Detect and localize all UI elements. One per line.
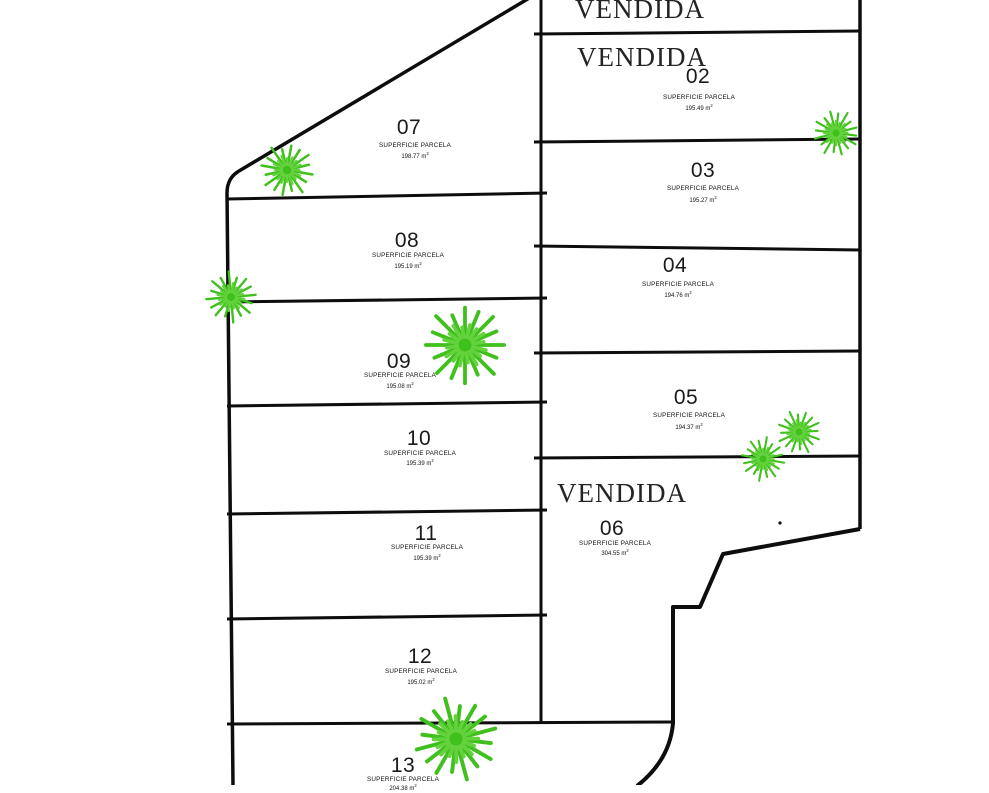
parcel-06-outer-boundary	[637, 529, 860, 785]
parcel-area: 195.49 m2	[685, 102, 712, 113]
parcel-area: 304.55 m2	[601, 547, 628, 558]
parcel-area: 194.76 m2	[664, 289, 691, 300]
plot-boundaries	[227, 0, 861, 785]
parcel-number: 13	[391, 756, 415, 776]
vendida-label: VENDIDA	[575, 0, 705, 23]
parcel-superficie-label: SUPERFICIE PARCELA	[663, 94, 735, 102]
parcel-superficie-label: SUPERFICIE PARCELA	[391, 544, 463, 552]
parcel-superficie-label: SUPERFICIE PARCELA	[642, 281, 714, 289]
parcel-superficie-label: SUPERFICIE PARCELA	[372, 252, 444, 260]
palm-trees	[197, 106, 862, 785]
parcel-area: 204.38 m2	[389, 782, 416, 793]
parcel-number: 09	[387, 352, 411, 372]
palm-tree-icon	[809, 106, 862, 160]
divider-03-04	[534, 246, 861, 250]
parcel-area: 195.08 m2	[386, 380, 413, 391]
parcel-area: 195.39 m2	[406, 457, 433, 468]
palm-tree-icon	[197, 263, 265, 330]
palm-tree-icon	[402, 686, 510, 785]
parcel-superficie-label: SUPERFICIE PARCELA	[653, 412, 725, 420]
parcel-area: 195.02 m2	[407, 676, 434, 687]
divider-04-05	[534, 351, 861, 353]
parcel-superficie-label: SUPERFICIE PARCELA	[385, 668, 457, 676]
parcel-number: 07	[397, 118, 421, 138]
vendida-label: VENDIDA	[557, 480, 687, 507]
divider-05-06	[534, 456, 861, 458]
divider-11-12	[227, 615, 547, 619]
left-boundary-line	[227, 0, 531, 785]
divider-07-08	[227, 193, 547, 199]
survey-point-dot	[778, 521, 781, 524]
parcel-area: 195.39 m2	[413, 552, 440, 563]
parcel-number: 12	[408, 647, 432, 667]
divider-10-11	[227, 510, 547, 514]
parcel-area: 195.27 m2	[689, 194, 716, 205]
divider-09-10	[227, 402, 547, 406]
parcel-number: 10	[407, 429, 431, 449]
palm-tree-icon	[257, 141, 316, 199]
site-plan-drawing	[0, 0, 989, 785]
parcel-area: 195.19 m2	[394, 260, 421, 271]
palm-tree-icon	[426, 308, 504, 384]
divider-08-09	[227, 298, 547, 302]
parcel-number: 02	[686, 67, 710, 87]
divider-02-03	[534, 139, 861, 142]
parcel-number: 03	[691, 161, 715, 181]
parcel-superficie-label: SUPERFICIE PARCELA	[364, 372, 436, 380]
divider-01-02	[534, 31, 861, 34]
parcel-number: 04	[663, 256, 687, 276]
parcel-site-plan: VENDIDA VENDIDA 02 SUPERFICIE PARCELA 19…	[0, 0, 989, 785]
parcel-number: 11	[415, 524, 438, 544]
parcel-area: 194.37 m2	[675, 421, 702, 432]
parcel-superficie-label: SUPERFICIE PARCELA	[379, 142, 451, 150]
parcel-area: 198.77 m2	[401, 150, 428, 161]
parcel-number: 05	[674, 388, 698, 408]
parcel-superficie-label: SUPERFICIE PARCELA	[667, 185, 739, 193]
parcel-number: 08	[395, 231, 419, 251]
parcel-number: 06	[600, 519, 624, 539]
palm-tree-icon	[772, 406, 826, 459]
